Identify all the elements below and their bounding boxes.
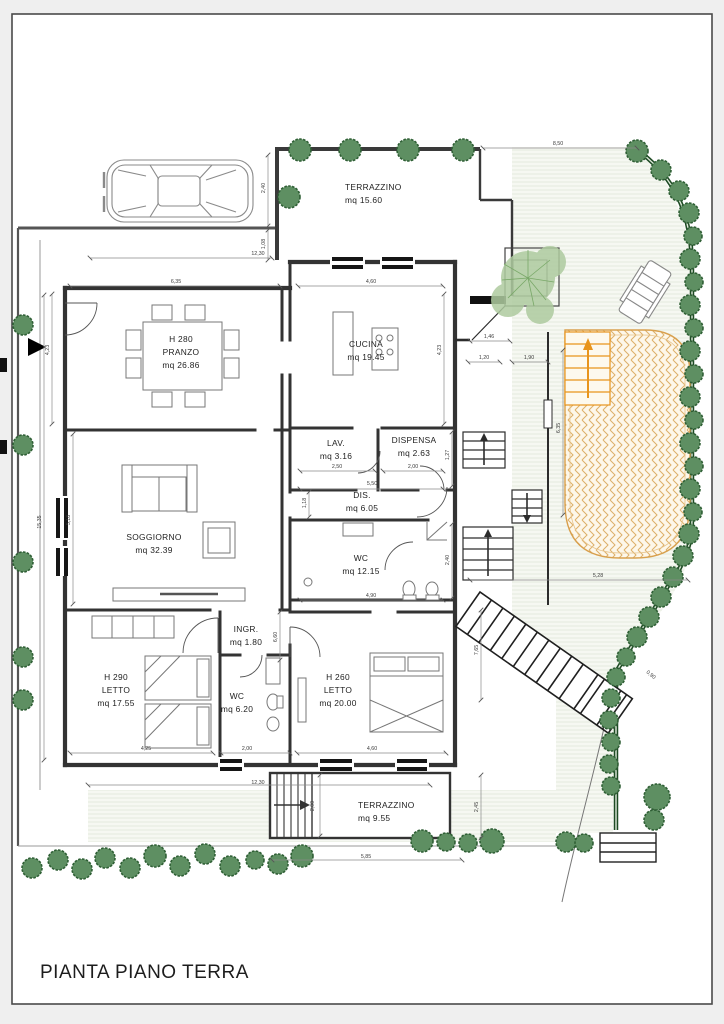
tree-icon (289, 139, 311, 161)
dimension-value: 1,08 (261, 239, 267, 249)
dimension-value: 7,65 (474, 645, 480, 655)
room-label-dis: mq 6.05 (346, 503, 378, 513)
tree-icon (627, 627, 647, 647)
car (104, 160, 253, 222)
tree-icon (13, 552, 33, 572)
tree-icon (680, 341, 700, 361)
room-label-letto-2: LETTO (324, 685, 353, 695)
tree-icon (651, 587, 671, 607)
room-label-dispensa: mq 2.63 (398, 448, 430, 458)
tree-icon (651, 160, 671, 180)
dimension-value: 1,20 (479, 355, 489, 361)
tree-icon (397, 139, 419, 161)
room-label-letto-2: H 260 (326, 672, 350, 682)
tree-icon (680, 433, 700, 453)
dimension-value: 5,50 (367, 481, 377, 487)
tree-icon (246, 851, 264, 869)
dimension-value: 6,35 (171, 279, 181, 285)
tv-cabinet (113, 588, 245, 601)
floor-plan-drawing: 8,502,401,0812,306,354,604,234,2315,355,… (0, 0, 724, 1024)
room-label-soggiorno: mq 32.39 (135, 545, 172, 555)
tree-icon (684, 503, 702, 521)
tree-icon (673, 546, 693, 566)
tree-icon (13, 435, 33, 455)
dimension-value: 5,28 (593, 573, 603, 579)
tree-icon (602, 733, 620, 751)
tree-icon (291, 845, 313, 867)
room-label-soggiorno: SOGGIORNO (126, 532, 181, 542)
tree-icon (13, 690, 33, 710)
room-label-terrazzino-nord: mq 15.60 (345, 195, 382, 205)
dimension-value: 15,35 (37, 515, 43, 528)
dimension-value: 2,00 (408, 464, 418, 470)
room-label-letto-1: H 290 (104, 672, 128, 682)
armchair (203, 522, 235, 558)
wardrobe (92, 616, 174, 638)
room-label-letto-2: mq 20.00 (319, 698, 356, 708)
tree-icon (602, 777, 620, 795)
room-label-pranzo: H 280 (169, 334, 193, 344)
room-label-ingresso: mq 1.80 (230, 637, 262, 647)
dimension-value: 2,50 (332, 464, 342, 470)
tree-icon (22, 858, 42, 878)
tree-icon (602, 689, 620, 707)
tree-icon (680, 295, 700, 315)
dimension-value: 2,45 (474, 802, 480, 812)
dimension-value: 1,90 (524, 355, 534, 361)
drawing-sheet: 8,502,401,0812,306,354,604,234,2315,355,… (0, 0, 724, 1024)
room-label-lav: mq 3.16 (320, 451, 352, 461)
tree-icon (679, 524, 699, 544)
tree-icon (685, 319, 703, 337)
room-label-cucina: mq 19.45 (347, 352, 384, 362)
tree-icon (679, 203, 699, 223)
tree-icon (170, 856, 190, 876)
dimension-value: 2,00 (310, 801, 316, 811)
room-label-wc-grande: WC (354, 553, 369, 563)
tree-icon (669, 181, 689, 201)
dimension-value: 6,60 (273, 632, 279, 642)
dimension-value: 1,46 (484, 334, 494, 340)
dimension-value: 4,25 (141, 746, 151, 752)
tree-icon (452, 139, 474, 161)
tree-icon (600, 711, 618, 729)
dimension-value: 1,27 (445, 450, 451, 460)
tree-icon (48, 850, 68, 870)
room-label-pranzo: mq 26.86 (162, 360, 199, 370)
dimension-value: 5,85 (361, 854, 371, 860)
dimension-value: 4,60 (367, 746, 377, 752)
tree-icon (680, 479, 700, 499)
dimension-value: 2,40 (445, 555, 451, 565)
tree-icon (617, 648, 635, 666)
tree-icon (685, 273, 703, 291)
tree-icon (685, 457, 703, 475)
tree-icon (680, 249, 700, 269)
tree-icon (13, 315, 33, 335)
tree-icon (639, 607, 659, 627)
tree-icon (600, 755, 618, 773)
room-label-ingresso: INGR. (234, 624, 259, 634)
dimension-value: 12,30 (251, 251, 264, 257)
tree-icon (268, 854, 288, 874)
dimension-value: 12,30 (251, 780, 264, 786)
tree-icon (644, 784, 670, 810)
room-label-wc-piccolo: mq 6.20 (221, 704, 253, 714)
room-label-letto-1: LETTO (102, 685, 131, 695)
room-label-wc-grande: mq 12.15 (342, 566, 379, 576)
tree-icon (556, 832, 576, 852)
radiator (298, 678, 306, 722)
tree-icon (95, 848, 115, 868)
sofa (122, 465, 197, 512)
tree-icon (685, 411, 703, 429)
dimension-value: 6,35 (556, 423, 562, 433)
tree-icon (663, 567, 683, 587)
sheet-title: PIANTA PIANO TERRA (40, 962, 249, 983)
dimension-value: 5,18 (66, 515, 72, 525)
tree-icon (13, 647, 33, 667)
tree-icon (437, 833, 455, 851)
room-label-letto-1: mq 17.55 (97, 698, 134, 708)
tree-icon (685, 365, 703, 383)
dimension-value: 4,60 (366, 279, 376, 285)
tree-icon (220, 856, 240, 876)
room-label-cucina: CUCINA (349, 339, 383, 349)
tree-icon (411, 830, 433, 852)
tree-icon (480, 829, 504, 853)
dimension-value: 8,50 (553, 141, 563, 147)
room-label-lav: LAV. (327, 438, 345, 448)
dimension-value: 2,40 (261, 183, 267, 193)
garden-steps-southeast (600, 833, 656, 862)
room-label-terrazzino-nord: TERRAZZINO (345, 182, 402, 192)
room-label-dis: DIS. (353, 490, 371, 500)
room-label-pranzo: PRANZO (163, 347, 200, 357)
dimension-value: 4,23 (45, 345, 51, 355)
tree-icon (607, 668, 625, 686)
tree-icon (278, 186, 300, 208)
tree-icon (339, 139, 361, 161)
tree-icon (72, 859, 92, 879)
tree-icon (680, 387, 700, 407)
dimension-value: 1,18 (302, 498, 308, 508)
room-label-terrazzino-sud: TERRAZZINO (358, 800, 415, 810)
dimension-value: 2,00 (242, 746, 252, 752)
room-label-wc-piccolo: WC (230, 691, 245, 701)
garden-steps (565, 332, 610, 405)
tree-icon (684, 227, 702, 245)
dimension-value: 4,23 (437, 345, 443, 355)
tree-icon (644, 810, 664, 830)
dimension-value: 4,90 (366, 593, 376, 599)
room-label-terrazzino-sud: mq 9.55 (358, 813, 390, 823)
tree-icon (626, 140, 648, 162)
tree-icon (120, 858, 140, 878)
room-label-dispensa: DISPENSA (392, 435, 437, 445)
tree-icon (144, 845, 166, 867)
tree-icon (459, 834, 477, 852)
double-bed (370, 653, 443, 732)
tree-icon (575, 834, 593, 852)
tree-icon (195, 844, 215, 864)
